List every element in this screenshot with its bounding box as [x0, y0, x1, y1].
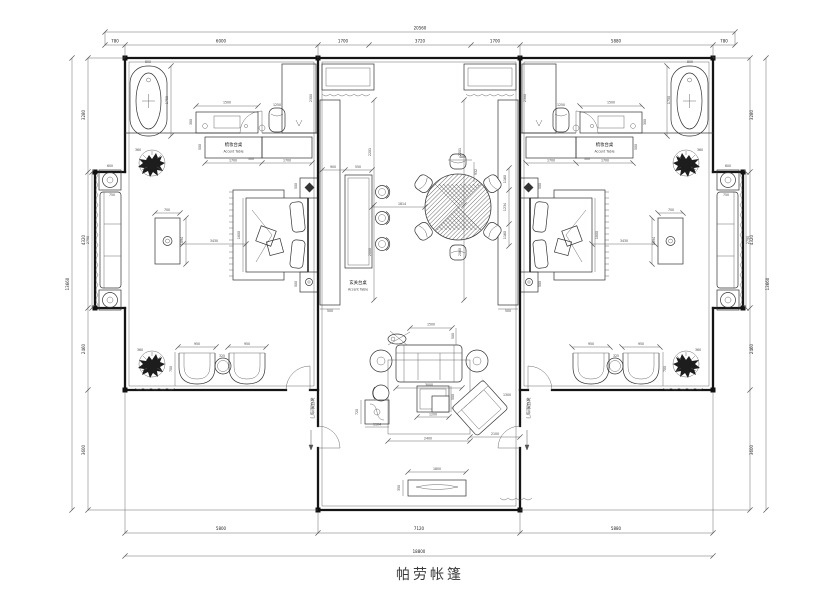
dim-label: 2460 [81, 343, 86, 354]
dim-label: 2790 [86, 236, 90, 244]
dim-label: 780 [111, 39, 119, 44]
dim-label: 750 [723, 193, 729, 197]
dim-label: 500 [451, 394, 455, 400]
dim-label: 3430 [210, 239, 218, 243]
dim-label: 950 [638, 342, 644, 346]
dim-label: 2300 [309, 94, 313, 102]
dim-label: 325 [613, 354, 619, 358]
dim-label: 5800 [216, 526, 227, 531]
floor-plan-canvas: 20560 780 6000 1700 3720 1700 5880 780 5… [0, 0, 837, 592]
drawing-title: 帕劳帐篷 [396, 567, 464, 583]
sliding-door-note-left: 玻璃推拉门 [309, 398, 316, 419]
floor-plan-sheet: 20560 780 6000 1700 3720 1700 5880 780 5… [0, 0, 837, 592]
dim-label: 1800 [237, 231, 241, 239]
dim-label: 1700 [283, 159, 291, 163]
dim-label: 3000 [425, 383, 433, 387]
dim-label: 1300 [503, 393, 511, 397]
dim-label: 500 [538, 183, 542, 189]
console-label-en: Accent Table [348, 288, 368, 292]
dim-label: 1200 [429, 413, 437, 417]
dim-label: 1750 [165, 96, 169, 104]
dim-label: 500 [294, 183, 298, 189]
console-label-cn: 玄关台桌 [349, 279, 367, 286]
dim-label: 700 [663, 366, 667, 372]
dim-label: 550 [355, 165, 361, 169]
dim-label: 7120 [414, 526, 425, 531]
dim-label: 500 [538, 281, 542, 287]
dim-label: 700 [164, 208, 170, 212]
dim-top-overall: 20560 [414, 26, 427, 31]
dim-label: 932 [474, 169, 478, 175]
dim-label: 1500 [607, 101, 615, 105]
dim-label: 5880 [611, 39, 622, 44]
dim-label: 700 [668, 208, 674, 212]
dim-label: 720 [355, 409, 359, 415]
dim-label: 500 [198, 144, 202, 150]
dim-label: 2790 [746, 236, 750, 244]
dim-label: 1160 [503, 175, 507, 183]
dim-label: 500 [584, 157, 590, 161]
dim-label: 500 [327, 309, 333, 313]
dim-label: 1160 [503, 231, 507, 239]
dim-label: 1234 [503, 203, 507, 211]
dim-label: 1500 [427, 323, 435, 327]
dim-label: 900 [330, 165, 336, 169]
dresser-label-en-left: Accent Table [223, 150, 243, 154]
dim-label: 5880 [611, 526, 622, 531]
dim-label: 1250 [273, 103, 281, 107]
dim-label: 3280 [81, 109, 86, 120]
dim-label: 1094 [180, 237, 184, 245]
dim-label: 6000 [216, 39, 227, 44]
dim-label: 800 [687, 60, 693, 64]
dim-label: 1700 [601, 159, 609, 163]
dim-label: 1700 [338, 39, 349, 44]
dim-side-overall: 13660 [765, 277, 770, 290]
dim-label: 360 [137, 348, 143, 352]
dim-label: 950 [194, 342, 200, 346]
dim-label: 1104 [373, 423, 381, 427]
dim-label: 1750 [667, 96, 671, 104]
dim-label: 1250 [557, 103, 565, 107]
dim-label: 1094 [652, 237, 656, 245]
dim-label: 2000 [458, 248, 462, 256]
dim-label: 500 [505, 309, 511, 313]
dim-label: 1700 [229, 159, 237, 163]
dim-label: 500 [248, 157, 254, 161]
dim-label: 1800 [595, 231, 599, 239]
dim-label: 3720 [415, 39, 426, 44]
sliding-door-note-right: 玻璃推拉门 [525, 398, 532, 419]
dim-label: 2201 [368, 148, 372, 156]
dim-label: 800 [145, 60, 151, 64]
dim-bottom-overall: 18800 [413, 549, 426, 554]
dim-label: 2300 [523, 94, 527, 102]
dresser-label-cn-right: 梳妆台桌 [596, 141, 614, 148]
dim-label: 2000 [368, 248, 372, 256]
dim-label: 300 [643, 119, 647, 125]
dim-label: 3600 [749, 444, 754, 455]
dim-label: 780 [720, 39, 728, 44]
dim-label: 600 [725, 164, 731, 168]
dim-label: 2400 [424, 437, 432, 441]
dim-label: 360 [697, 148, 703, 152]
dim-label: 500 [451, 333, 455, 339]
dim-label: 2100 [491, 432, 499, 436]
dim-label: 300 [189, 119, 193, 125]
dim-label: 360 [695, 348, 701, 352]
dim-label: 3430 [620, 239, 628, 243]
dim-side-overall: 13660 [65, 277, 70, 290]
dresser-label-cn-left: 梳妆台桌 [225, 141, 243, 148]
dim-label: 950 [244, 342, 250, 346]
dim-label: 500 [294, 281, 298, 287]
dim-label: 700 [169, 366, 173, 372]
dim-label: 360 [135, 148, 141, 152]
dim-label: 480 [459, 155, 465, 159]
dim-label: 600 [107, 164, 113, 168]
dim-label: 2460 [749, 343, 754, 354]
dim-label: 1700 [547, 159, 555, 163]
dim-label: 3600 [81, 444, 86, 455]
dim-label: 950 [588, 342, 594, 346]
dim-label: 1814 [398, 202, 406, 206]
dim-label: 1700 [490, 39, 501, 44]
dresser-label-en-right: Accent Table [594, 150, 614, 154]
dim-label: 1500 [223, 101, 231, 105]
dim-label: 500 [634, 144, 638, 150]
dim-label: 325 [219, 354, 225, 358]
dim-label: 3280 [749, 109, 754, 120]
dim-label: 1800 [433, 467, 441, 471]
dim-label: 750 [109, 193, 115, 197]
dim-label: 350 [397, 485, 401, 491]
